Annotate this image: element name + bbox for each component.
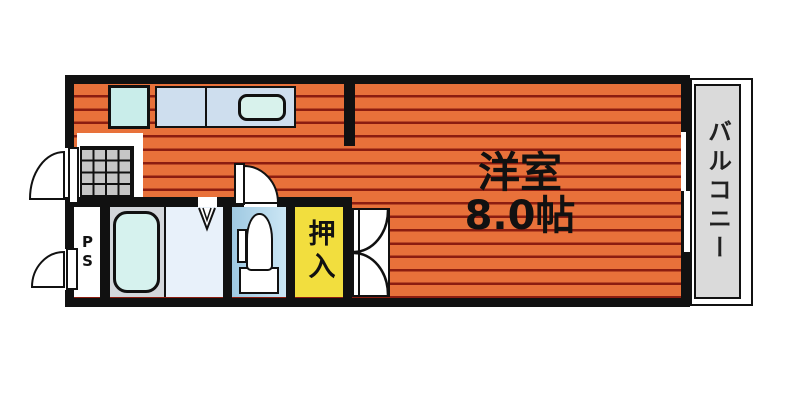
- wall-stub: [344, 84, 355, 146]
- washroom-opening: [198, 197, 217, 207]
- entrance-opening: [65, 148, 74, 203]
- pipe-space-door-arc: [32, 252, 64, 287]
- wall: [343, 197, 352, 307]
- washroom: [166, 207, 223, 297]
- toilet-opening: [244, 197, 277, 207]
- balcony: バルコニー: [694, 84, 741, 299]
- pipe-space-label: PS: [80, 233, 95, 271]
- entrance-door-arc: [30, 152, 64, 199]
- room-name: 洋室: [420, 150, 620, 195]
- counter-divider: [205, 87, 207, 127]
- kitchen-sink-icon: [238, 94, 286, 121]
- wall: [223, 197, 232, 307]
- wall: [286, 197, 295, 307]
- wall: [100, 197, 110, 307]
- balcony-label: バルコニー: [706, 119, 730, 264]
- bathtub-icon: [113, 211, 160, 293]
- closet: 押入: [295, 207, 343, 297]
- stove-icon: [108, 85, 150, 129]
- pipe-space-opening: [65, 249, 74, 290]
- toilet-icon: [246, 213, 273, 271]
- main-room-label: 洋室 8.0帖: [420, 150, 620, 239]
- floorplan: PS 押入 洋室 8.0帖 バルコニー: [0, 0, 800, 400]
- entrance-tiles-icon: [80, 146, 134, 197]
- closet-door-leaf: [358, 210, 360, 295]
- toilet-icon: [239, 267, 279, 294]
- room-size: 8.0帖: [420, 195, 620, 238]
- closet-label: 押入: [306, 219, 333, 285]
- pipe-space: PS: [74, 207, 100, 297]
- sliding-window-icon: [681, 132, 686, 191]
